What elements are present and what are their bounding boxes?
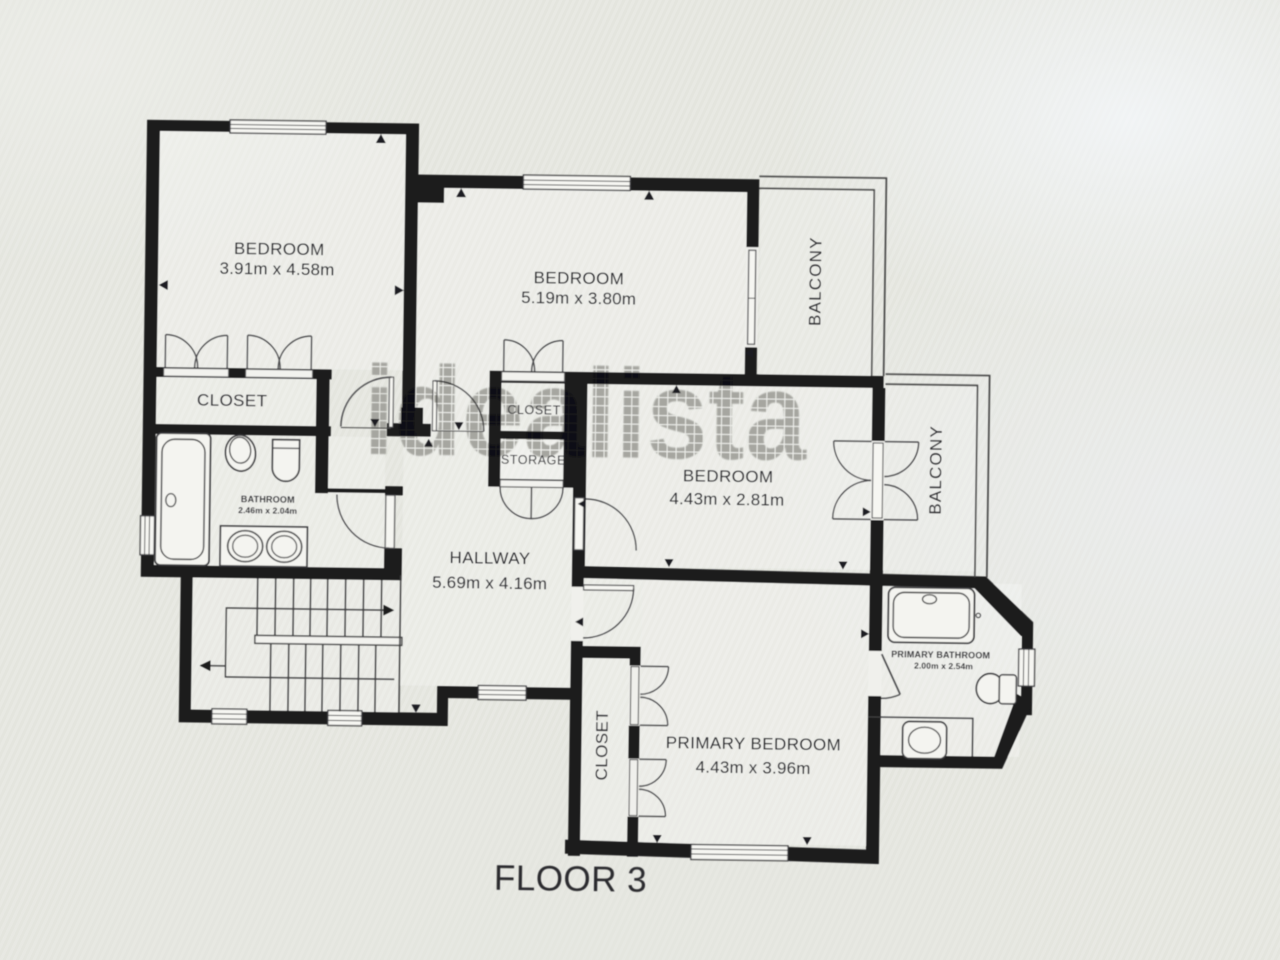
svg-text:BEDROOM: BEDROOM [234,239,325,259]
svg-text:2.46m x 2.04m: 2.46m x 2.04m [238,505,297,516]
svg-text:BALCONY: BALCONY [926,425,946,515]
svg-text:idealista: idealista [363,341,809,487]
svg-text:HALLWAY: HALLWAY [449,548,530,568]
svg-text:PRIMARY BATHROOM: PRIMARY BATHROOM [891,649,990,660]
svg-text:BEDROOM: BEDROOM [534,268,625,288]
svg-text:4.43m x 2.81m: 4.43m x 2.81m [669,489,784,510]
svg-text:CLOSET: CLOSET [197,391,268,411]
svg-text:2.00m x 2.54m: 2.00m x 2.54m [914,661,973,672]
svg-text:3.91m x 4.58m: 3.91m x 4.58m [219,259,334,280]
svg-text:BATHROOM: BATHROOM [241,494,295,505]
svg-text:CLOSET: CLOSET [507,403,561,418]
svg-text:CLOSET: CLOSET [592,710,612,781]
svg-text:5.69m x 4.16m: 5.69m x 4.16m [432,573,547,594]
svg-text:5.19m x 3.80m: 5.19m x 3.80m [521,288,636,309]
svg-text:4.43m x 3.96m: 4.43m x 3.96m [695,758,810,779]
svg-text:BEDROOM: BEDROOM [683,466,774,486]
svg-text:STORAGE: STORAGE [501,453,566,468]
svg-text:FLOOR 3: FLOOR 3 [494,859,648,900]
svg-text:BALCONY: BALCONY [805,236,825,326]
svg-text:PRIMARY BEDROOM: PRIMARY BEDROOM [666,733,842,754]
